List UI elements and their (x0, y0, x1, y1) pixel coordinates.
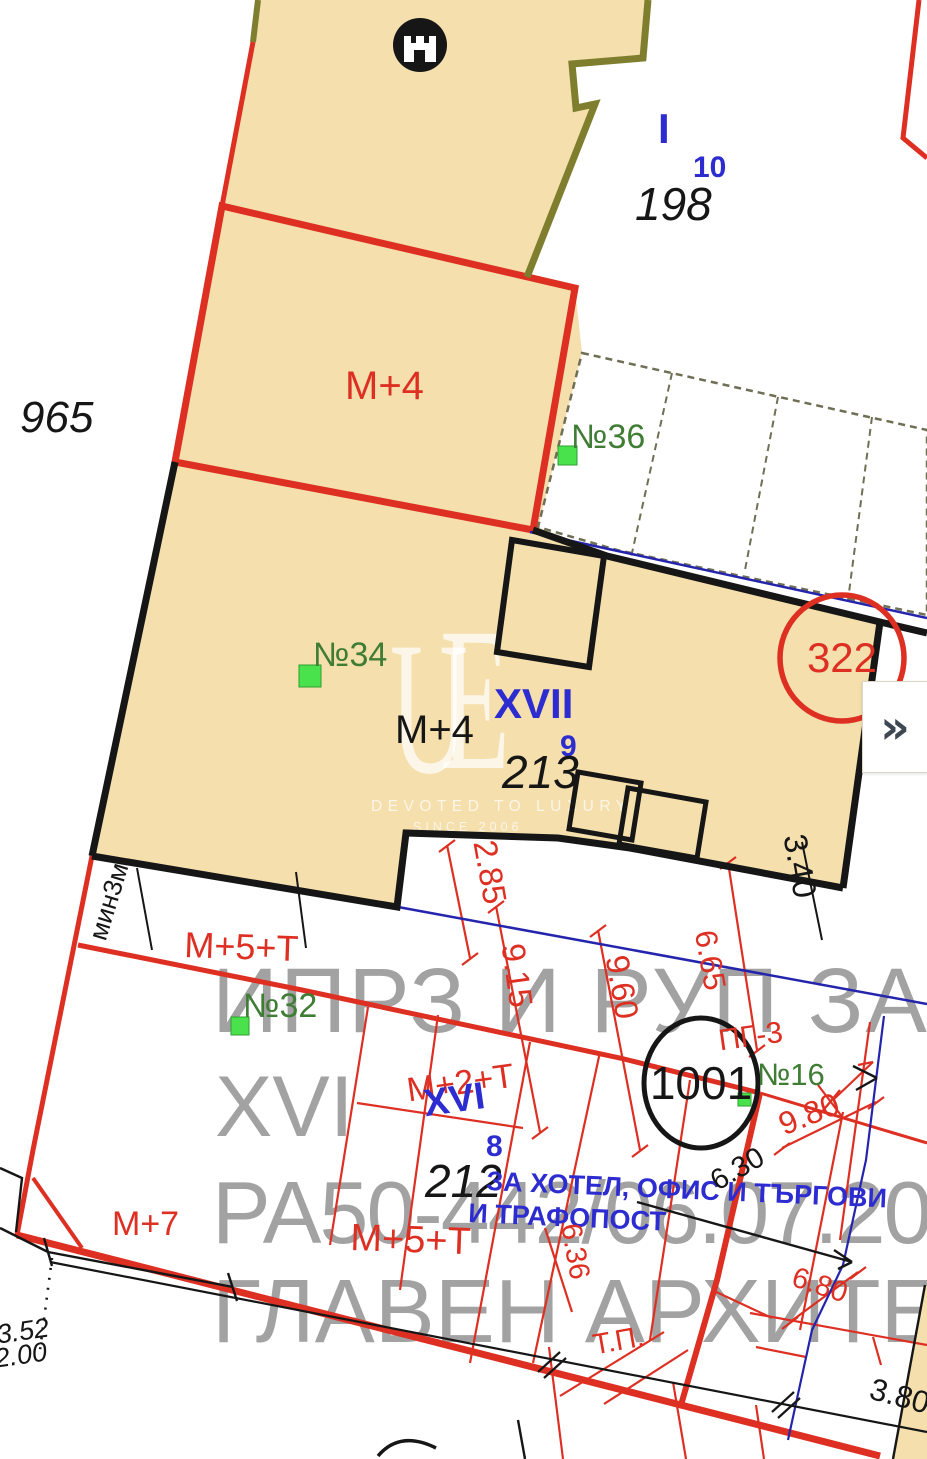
label-quarter-roman: I (658, 105, 670, 152)
brand-text: DEVOTED TO LUXURY (371, 798, 632, 815)
map-drawing: ИПРЗ И РУП ЗА К XVI РА50-442/06.07.20 ГЛ… (0, 0, 927, 1459)
black-survey-lines (0, 842, 927, 1459)
label-no32: №32 (243, 987, 317, 1025)
label-m7: M+7 (112, 1205, 179, 1243)
label-m5t-upper: M+5+T (184, 924, 299, 969)
watermark-line2: XVI (215, 1059, 354, 1155)
expand-panel-button[interactable]: » (862, 681, 927, 773)
label-no36: №36 (571, 418, 645, 456)
label-xvi-roman: XVI (421, 1075, 487, 1125)
red-plot-lines (330, 845, 927, 1459)
label-no16: №16 (757, 1057, 825, 1092)
label-965: 965 (20, 393, 94, 442)
label-m4-red: M+4 (345, 364, 424, 408)
label-1001: 1001 (650, 1057, 752, 1109)
double-chevron-right-icon: » (880, 700, 910, 754)
cadastral-map-canvas[interactable]: ИПРЗ И РУП ЗА К XVI РА50-442/06.07.20 ГЛ… (0, 0, 927, 1459)
label-m5t-lower: M+5+T (350, 1217, 472, 1263)
dim-2-00: 2.00 (0, 1337, 49, 1374)
label-no34: №34 (313, 636, 387, 674)
label-quarter-number: 198 (635, 178, 712, 230)
label-xvii-roman: XVII (494, 680, 573, 727)
label-213: 213 (501, 746, 579, 798)
dim-2-85: 2.85 (467, 837, 515, 907)
label-xvii-zoning: M+4 (395, 708, 474, 752)
label-322: 322 (807, 634, 877, 681)
watermark-line1: ИПРЗ И РУП ЗА К (212, 950, 927, 1052)
castle-icon (393, 18, 447, 72)
